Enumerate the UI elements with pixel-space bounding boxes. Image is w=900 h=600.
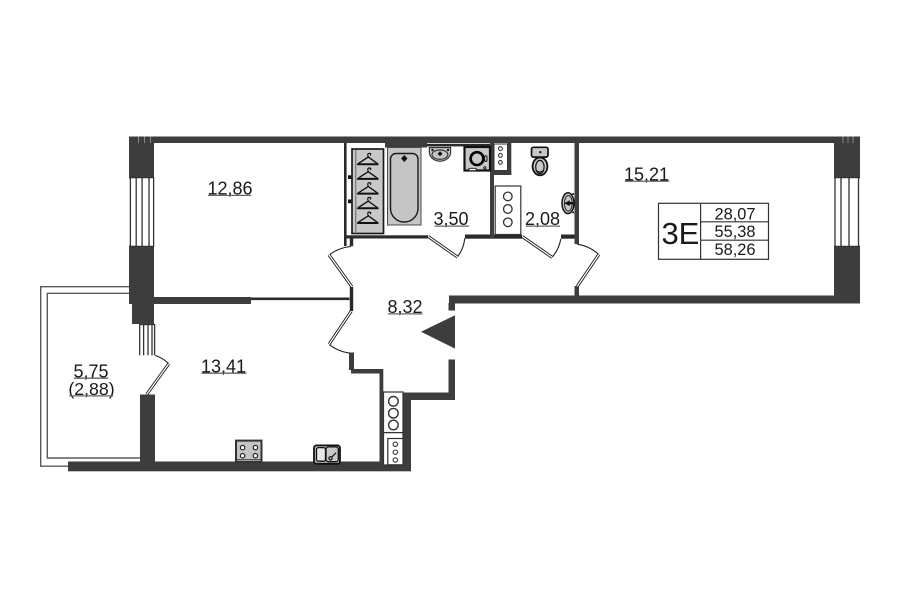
svg-text:28,07: 28,07	[714, 206, 755, 224]
svg-text:58,26: 58,26	[714, 241, 755, 259]
svg-text:55,38: 55,38	[714, 223, 755, 241]
svg-text:3Е: 3Е	[661, 216, 699, 251]
